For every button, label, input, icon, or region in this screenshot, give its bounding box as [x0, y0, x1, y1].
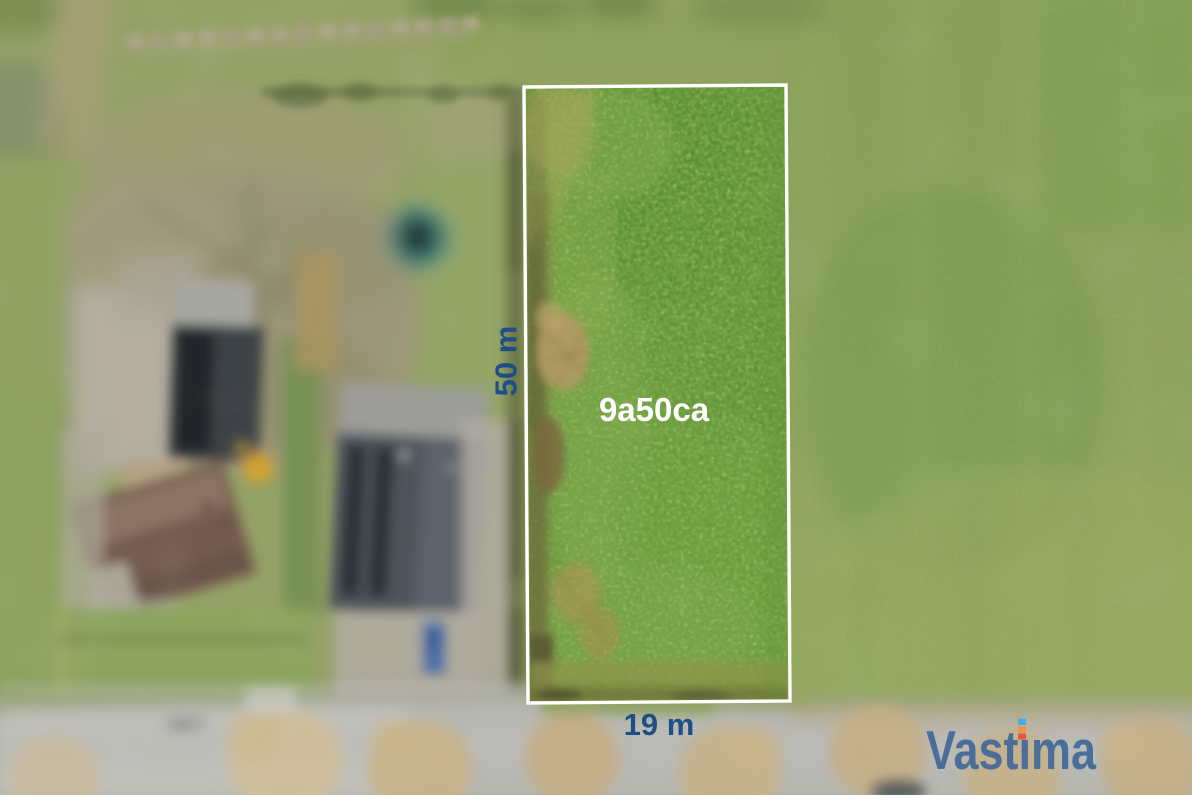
svg-text:50 m: 50 m	[489, 326, 524, 397]
svg-text:Vastıma: Vastıma	[926, 719, 1096, 781]
svg-text:9a50ca: 9a50ca	[599, 391, 710, 428]
svg-text:19 m: 19 m	[624, 707, 695, 742]
